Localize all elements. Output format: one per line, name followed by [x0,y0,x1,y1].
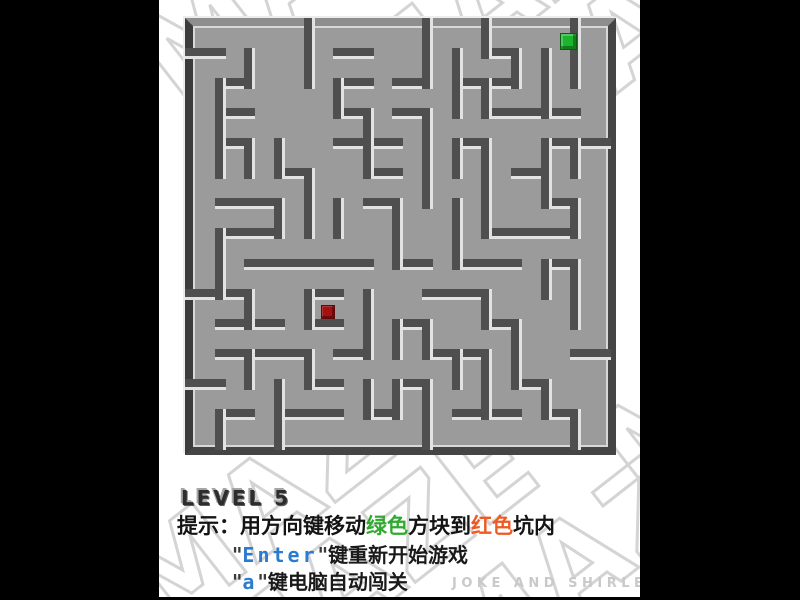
maze-wall-vertical [333,198,344,239]
maze-wall-vertical [541,168,552,209]
enter-key-label: Enter [242,543,317,567]
maze-wall-vertical [511,48,522,89]
maze-wall-vertical [392,228,403,269]
hint-prefix: 提示：用方向键移动 [177,514,366,538]
maze-wall-vertical [481,78,492,119]
maze-wall-vertical [481,289,492,330]
maze-wall-vertical [274,138,285,179]
maze-wall-vertical [570,289,581,330]
maze-wall-vertical [570,409,581,450]
maze-wall-vertical [363,319,374,360]
maze-wall-vertical [541,78,552,119]
maze-wall-vertical [422,319,433,360]
maze-wall-vertical [452,78,463,119]
maze-wall-horizontal [333,259,374,270]
maze-wall-vertical [452,228,463,269]
hint-green-word: 绿色 [366,514,408,538]
maze-interior [193,26,608,447]
maze-wall-vertical [244,48,255,89]
green-player-block[interactable] [560,33,577,50]
maze-wall-vertical [392,379,403,420]
maze-wall-vertical [422,48,433,89]
maze-wall-vertical [363,379,374,420]
maze-wall-vertical [422,168,433,209]
maze-wall-vertical [452,138,463,179]
quote-mark: " [257,570,267,594]
maze-wall-vertical [304,349,315,390]
maze-wall-vertical [304,48,315,89]
maze-wall-vertical [570,198,581,239]
maze-wall-vertical [422,409,433,450]
maze-wall-vertical [541,259,552,300]
maze-wall-horizontal [185,48,226,59]
maze-wall-vertical [481,198,492,239]
maze-wall-horizontal [570,349,611,360]
maze-board [185,18,616,455]
maze-wall-vertical [244,138,255,179]
maze-wall-vertical [541,379,552,420]
maze-wall-vertical [452,349,463,390]
autoplay-instruction: "a"键电脑自动闯关 [232,566,408,595]
level-label: LEVEL 5 [181,486,291,510]
maze-wall-vertical [333,78,344,119]
hint-red-word: 红色 [471,514,513,538]
maze-wall-vertical [215,259,226,300]
maze-wall-vertical [244,349,255,390]
restart-text: 键重新开始游戏 [328,543,468,567]
quote-mark: " [232,570,242,594]
maze-wall-vertical [392,319,403,360]
quote-mark: " [232,543,242,567]
quote-mark: " [318,543,328,567]
maze-wall-vertical [304,289,315,330]
hint-suffix: 坑内 [513,514,555,538]
maze-wall-vertical [304,198,315,239]
credit-text: JOKE AND SHIRLEY [452,576,640,591]
red-target-pit [321,305,335,319]
maze-wall-vertical [481,379,492,420]
a-key-label: a [242,570,257,594]
maze-wall-vertical [215,409,226,450]
maze-wall-horizontal [185,379,226,390]
maze-wall-vertical [274,198,285,239]
maze-wall-vertical [215,138,226,179]
maze-wall-vertical [244,289,255,330]
game-panel: MAZEMAZEMAZEMAZEMAZEMAZEMAZE LEVEL 5 提示：… [159,0,640,597]
maze-wall-horizontal [304,409,345,420]
maze-wall-vertical [274,409,285,450]
maze-wall-vertical [363,138,374,179]
hint-line: 提示：用方向键移动绿色方块到红色坑内 [177,510,555,540]
maze-wall-horizontal [481,259,522,270]
maze-wall-vertical [481,18,492,59]
game-screen: { "title": "MAZE game", "watermark": { "… [0,0,800,600]
maze-wall-vertical [570,138,581,179]
restart-instruction: "Enter"键重新开始游戏 [232,539,468,568]
maze-wall-vertical [511,349,522,390]
autoplay-text: 键电脑自动闯关 [268,570,408,594]
maze-wall-horizontal [333,48,374,59]
hint-mid: 方块到 [408,514,471,538]
maze-wall-vertical [570,48,581,89]
